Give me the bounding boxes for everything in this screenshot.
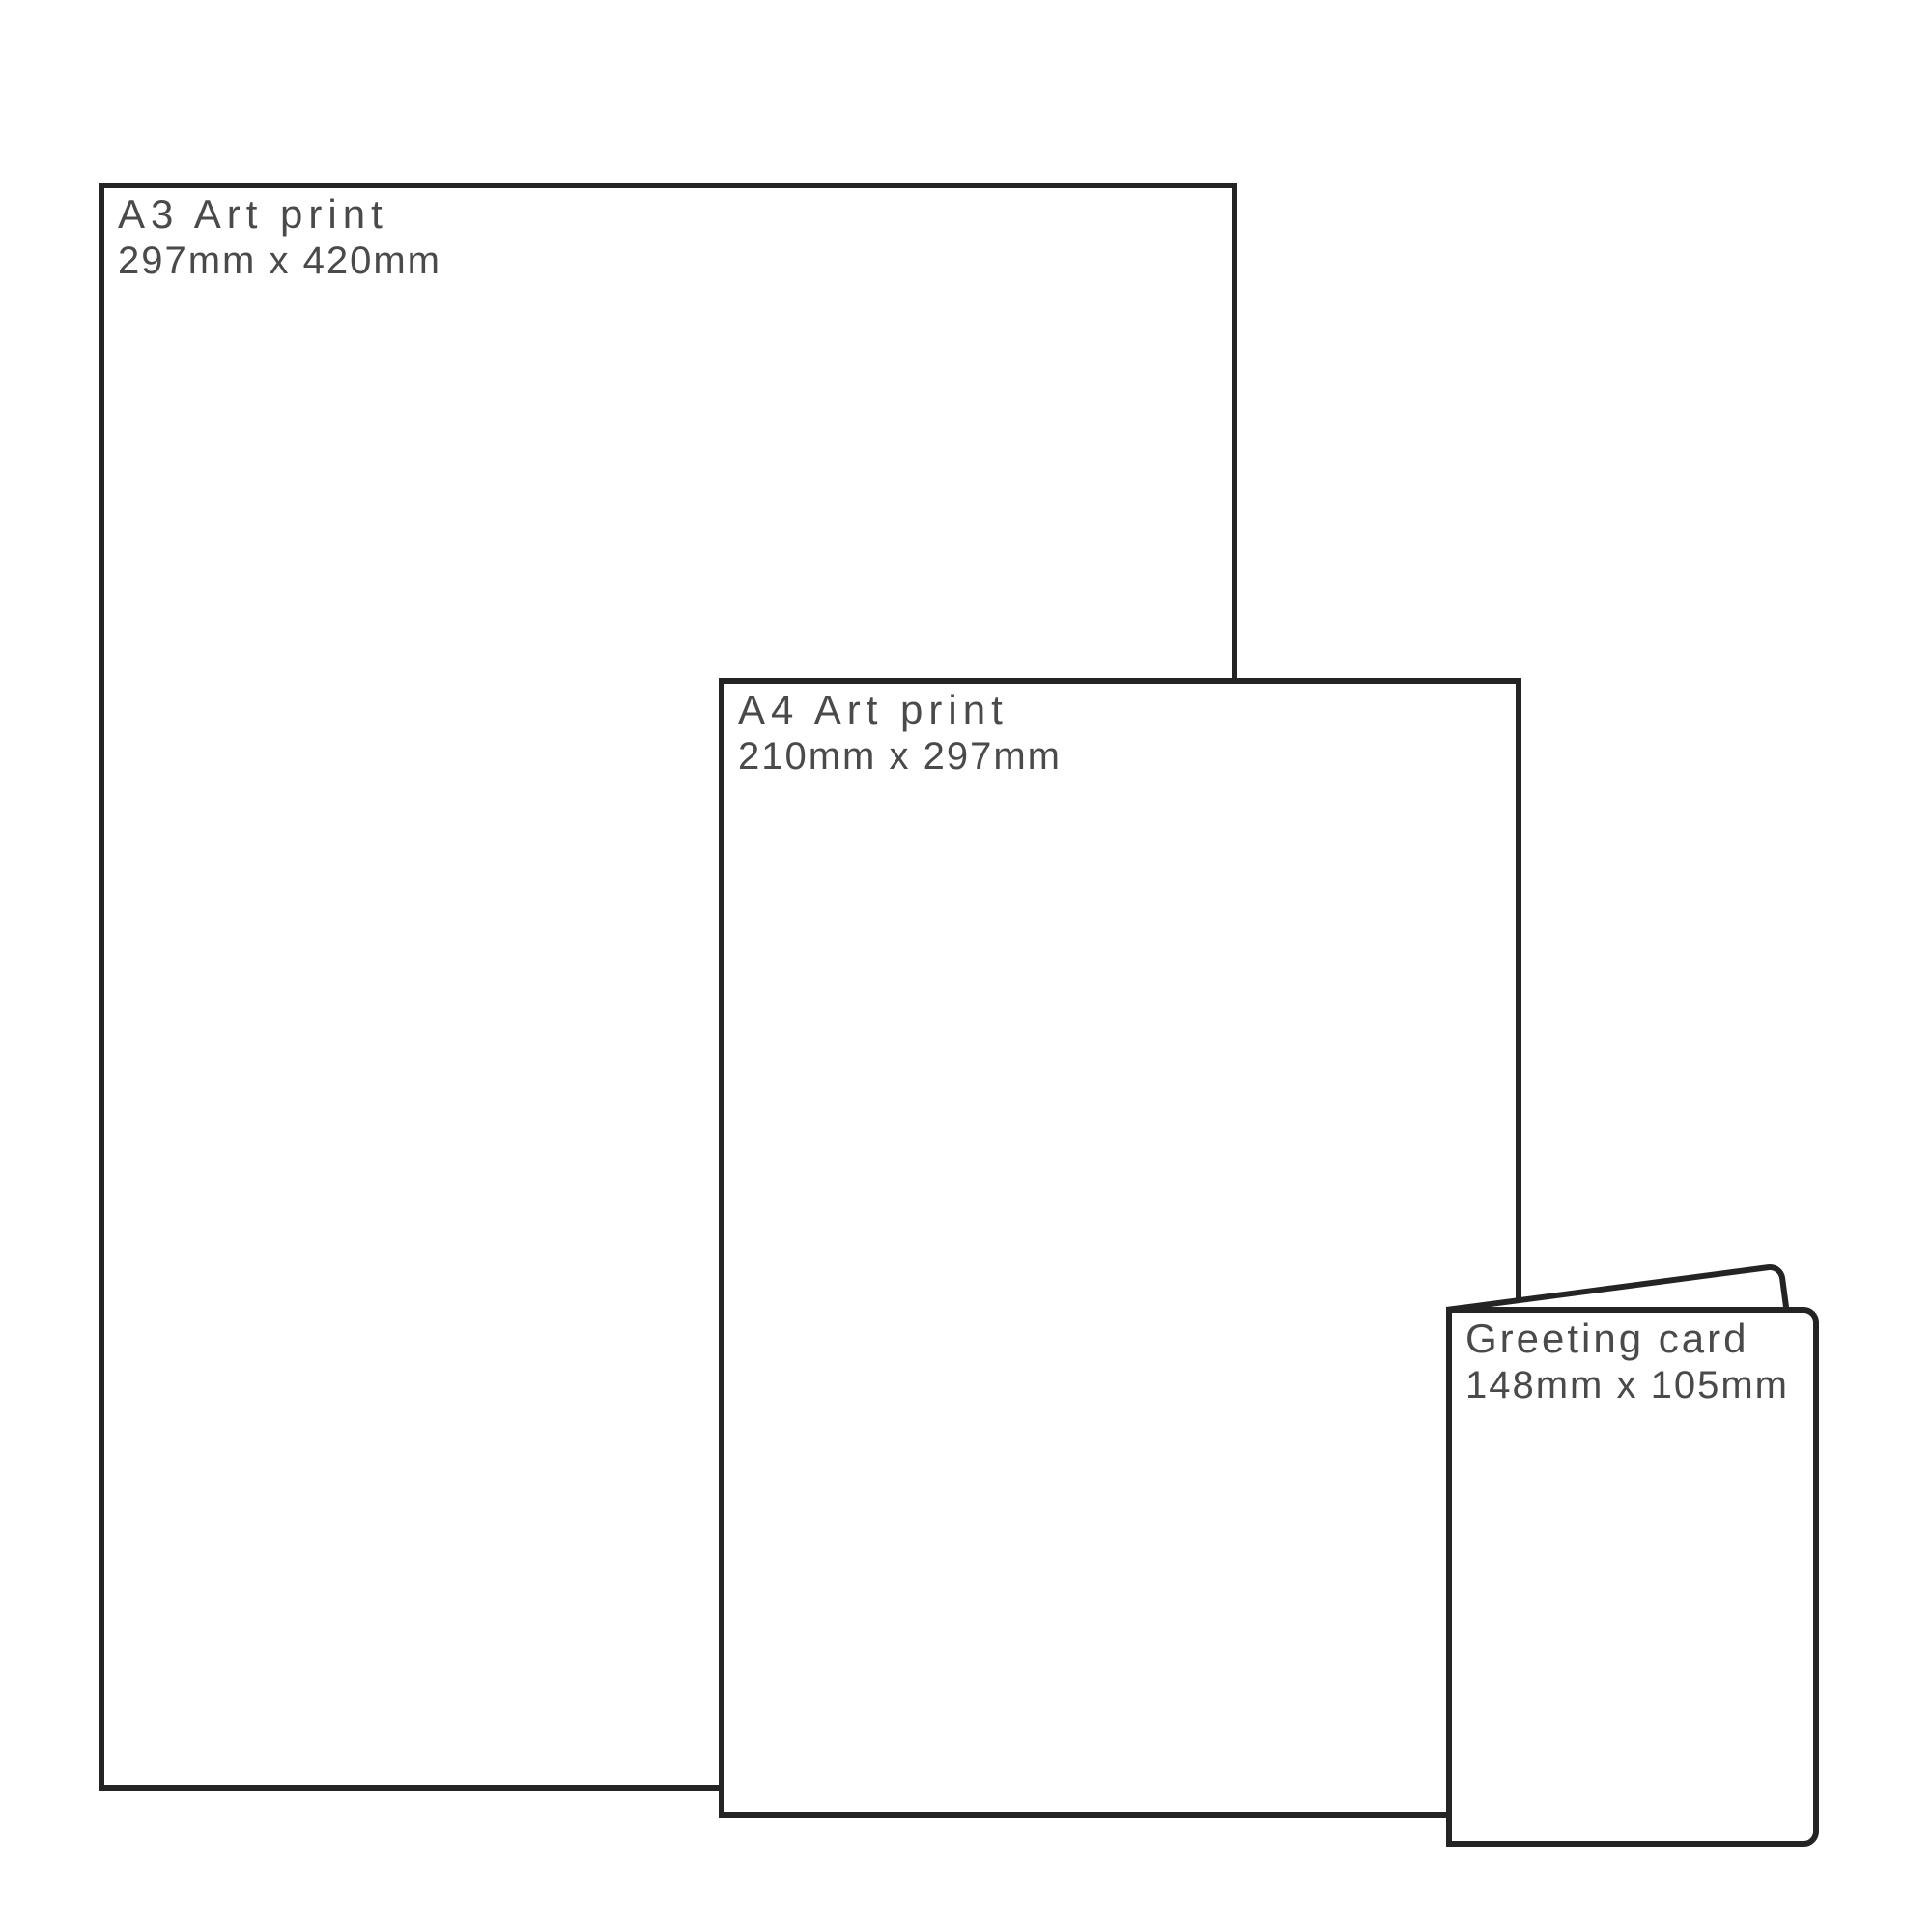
a4-label: A4 Art print 210mm x 297mm [724,684,1516,780]
greeting-card-title: Greeting card [1465,1316,1805,1362]
greeting-card-dimensions: 148mm x 105mm [1465,1362,1805,1408]
greeting-card-front: Greeting card 148mm x 105mm [1446,1307,1819,1847]
a4-title: A4 Art print [738,687,1508,733]
a4-dimensions: 210mm x 297mm [738,733,1508,780]
a3-label: A3 Art print 297mm x 420mm [104,188,1232,284]
a4-sheet: A4 Art print 210mm x 297mm [719,678,1521,1818]
greeting-card-label: Greeting card 148mm x 105mm [1452,1313,1813,1408]
a3-title: A3 Art print [118,191,1224,238]
size-comparison-diagram: A3 Art print 297mm x 420mm A4 Art print … [0,0,1932,1932]
a3-dimensions: 297mm x 420mm [118,238,1224,284]
